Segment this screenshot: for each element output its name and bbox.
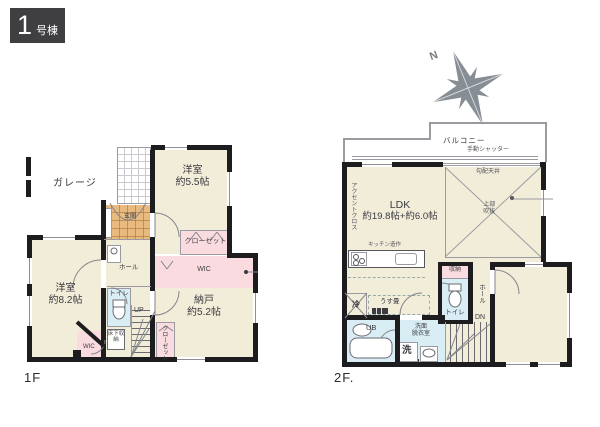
wall-segment	[438, 262, 472, 266]
balcony-label: バルコニー	[443, 137, 485, 146]
washer-label: 洗	[402, 346, 412, 357]
stairs-2f	[445, 322, 490, 362]
porch-tiles	[117, 147, 151, 204]
floor1-label: 1F	[24, 370, 41, 385]
badge-suffix: 号棟	[36, 22, 58, 38]
wall-segment	[27, 357, 258, 362]
wall-segment	[464, 65, 480, 89]
room-label: 納戸約5.2帖	[153, 295, 255, 318]
wall-segment: 約5.2帖	[153, 307, 255, 319]
toilet2-label: トイレ	[440, 309, 470, 316]
dn-label: DN	[475, 314, 485, 322]
wall-segment: 洗面	[402, 324, 440, 331]
wall-segment	[43, 235, 75, 240]
storage-label: 収納	[442, 267, 468, 274]
hall2-label: ホール	[477, 284, 484, 304]
stove	[351, 252, 367, 266]
wall-segment	[465, 67, 505, 94]
wall-segment	[150, 213, 155, 237]
sloped-ceiling-label: 勾配天井	[476, 169, 500, 176]
wall-segment	[466, 84, 490, 100]
room-label: 洋室約8.2帖	[27, 283, 104, 306]
wall-segment	[567, 293, 572, 338]
wall-segment	[131, 305, 132, 357]
thin-tatami-label: うす畳	[380, 298, 400, 305]
garage-wall	[26, 157, 31, 176]
fridge-label: 冷	[345, 300, 367, 309]
shutter-line	[352, 159, 538, 160]
shutter-label: 手動シャッター	[467, 147, 509, 154]
wall-segment	[445, 322, 446, 362]
closet-top-label: クローゼット	[180, 238, 231, 246]
compass-north-label: N	[428, 49, 440, 64]
wall-segment	[107, 286, 151, 287]
balcony-edge	[429, 122, 547, 124]
wall-segment	[443, 162, 540, 167]
wall-segment: 納戸	[153, 295, 255, 307]
wall-segment	[165, 145, 187, 150]
ldk-size-label: 約19.8帖+約6.0帖	[346, 212, 454, 223]
balcony-edge	[429, 122, 431, 140]
wall-segment	[430, 82, 470, 109]
wall-segment: 脱衣室	[402, 331, 440, 338]
balcony-edge	[343, 138, 431, 140]
shutter-line	[352, 156, 538, 157]
wall-segment	[538, 362, 560, 367]
wall-segment	[342, 315, 445, 320]
kitchen-line	[348, 277, 425, 278]
floorplan-1f: 洋室約5.5帖 クローゼット WIC 納戸約5.2帖 洋室約8.2帖 クローゼッ…	[25, 145, 260, 370]
washbasin-2f	[420, 346, 438, 362]
wall-segment	[227, 253, 258, 258]
wall-segment	[27, 258, 32, 284]
wall-segment: 洋室	[27, 283, 104, 295]
hall-label: ホール	[119, 264, 139, 271]
balcony-edge	[545, 122, 547, 162]
wall-segment	[445, 257, 541, 258]
garage-label: ガレージ	[53, 178, 97, 190]
floorplan-2f: バルコニー 手動シャッター 勾配天井 上部吹抜 アクセントクロス LDK 約19…	[340, 118, 585, 378]
washroom-label: 洗面脱衣室	[402, 324, 440, 338]
floorplan-canvas: 1 号棟 N	[0, 0, 600, 427]
wall-segment: 約8.2帖	[27, 295, 104, 307]
wall-segment	[541, 190, 546, 216]
wall-segment	[433, 88, 468, 102]
room-right	[495, 267, 567, 362]
wall-segment	[506, 362, 530, 367]
open-above-label: 上部吹抜	[482, 202, 496, 216]
wall-segment	[455, 86, 471, 110]
wall-segment	[342, 162, 347, 367]
genkan-label: 玄関	[124, 214, 136, 221]
closet-stairs-label: クローゼット	[160, 325, 167, 361]
wall-segment	[525, 262, 543, 267]
kitchen-sink	[395, 253, 417, 265]
wall-segment	[490, 270, 495, 294]
building-badge: 1 号棟	[10, 8, 65, 43]
ldk-name-label: LDK	[370, 199, 430, 211]
wall-segment	[362, 162, 392, 167]
kitchen-note-label: キッチン造作	[368, 242, 401, 248]
wall-segment	[177, 357, 205, 362]
wall-segment	[151, 145, 232, 150]
floor2-label: 2F.	[334, 370, 354, 385]
toilet-label: トイレ	[105, 290, 133, 297]
wall-segment	[442, 278, 468, 279]
unit-bath-label: UB	[366, 324, 376, 333]
balcony-edge	[343, 138, 345, 162]
shoe-cabinet	[105, 208, 112, 238]
wall-segment	[438, 320, 473, 324]
wic-small-label: WIC	[83, 344, 95, 351]
badge-number: 1	[17, 12, 32, 39]
wall-segment	[104, 239, 150, 240]
wall-segment	[438, 58, 498, 118]
garage-wall	[26, 180, 31, 197]
washbasin-hall	[107, 245, 121, 263]
wic-main-label: WIC	[153, 266, 255, 274]
wall-segment	[468, 74, 503, 88]
wall-segment	[445, 75, 469, 91]
wall-segment	[400, 315, 422, 320]
wall-segment: 洋室	[153, 165, 232, 177]
up-label: UP	[134, 307, 144, 315]
wall-segment: 約5.5帖	[153, 177, 232, 189]
wall-segment	[453, 51, 468, 88]
wall-segment	[395, 320, 400, 362]
underfloor-label: 床下収納	[107, 331, 125, 344]
wall-segment	[447, 48, 475, 90]
counter-box	[372, 308, 388, 314]
room-label: 洋室約5.5帖	[153, 165, 232, 188]
wall-segment	[73, 350, 81, 359]
